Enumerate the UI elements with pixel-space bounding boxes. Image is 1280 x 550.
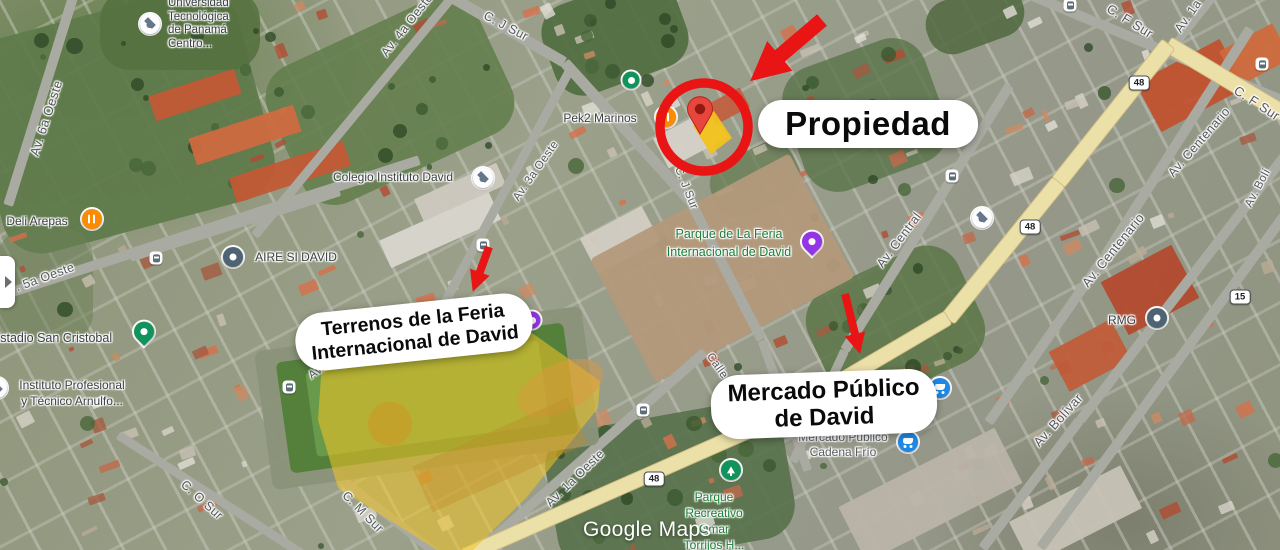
chevron-right-icon [5,276,12,288]
red-arrow-to-terrenos [477,247,489,280]
google-maps-watermark: Google Maps [583,518,711,542]
annotation-layer [0,0,1280,550]
propiedad-annotation-bubble: Propiedad [758,100,978,148]
mercado-annotation-bubble: Mercado Público de David [710,368,938,440]
expand-side-panel-button[interactable] [0,256,15,308]
google-maps-satellite-screenshot: Av. 6a Oeste Av. 4a Oeste C. J Sur Av. 3… [0,0,1280,550]
red-arrow-to-mercado [845,294,857,342]
red-arrow-to-propiedad [768,20,822,66]
